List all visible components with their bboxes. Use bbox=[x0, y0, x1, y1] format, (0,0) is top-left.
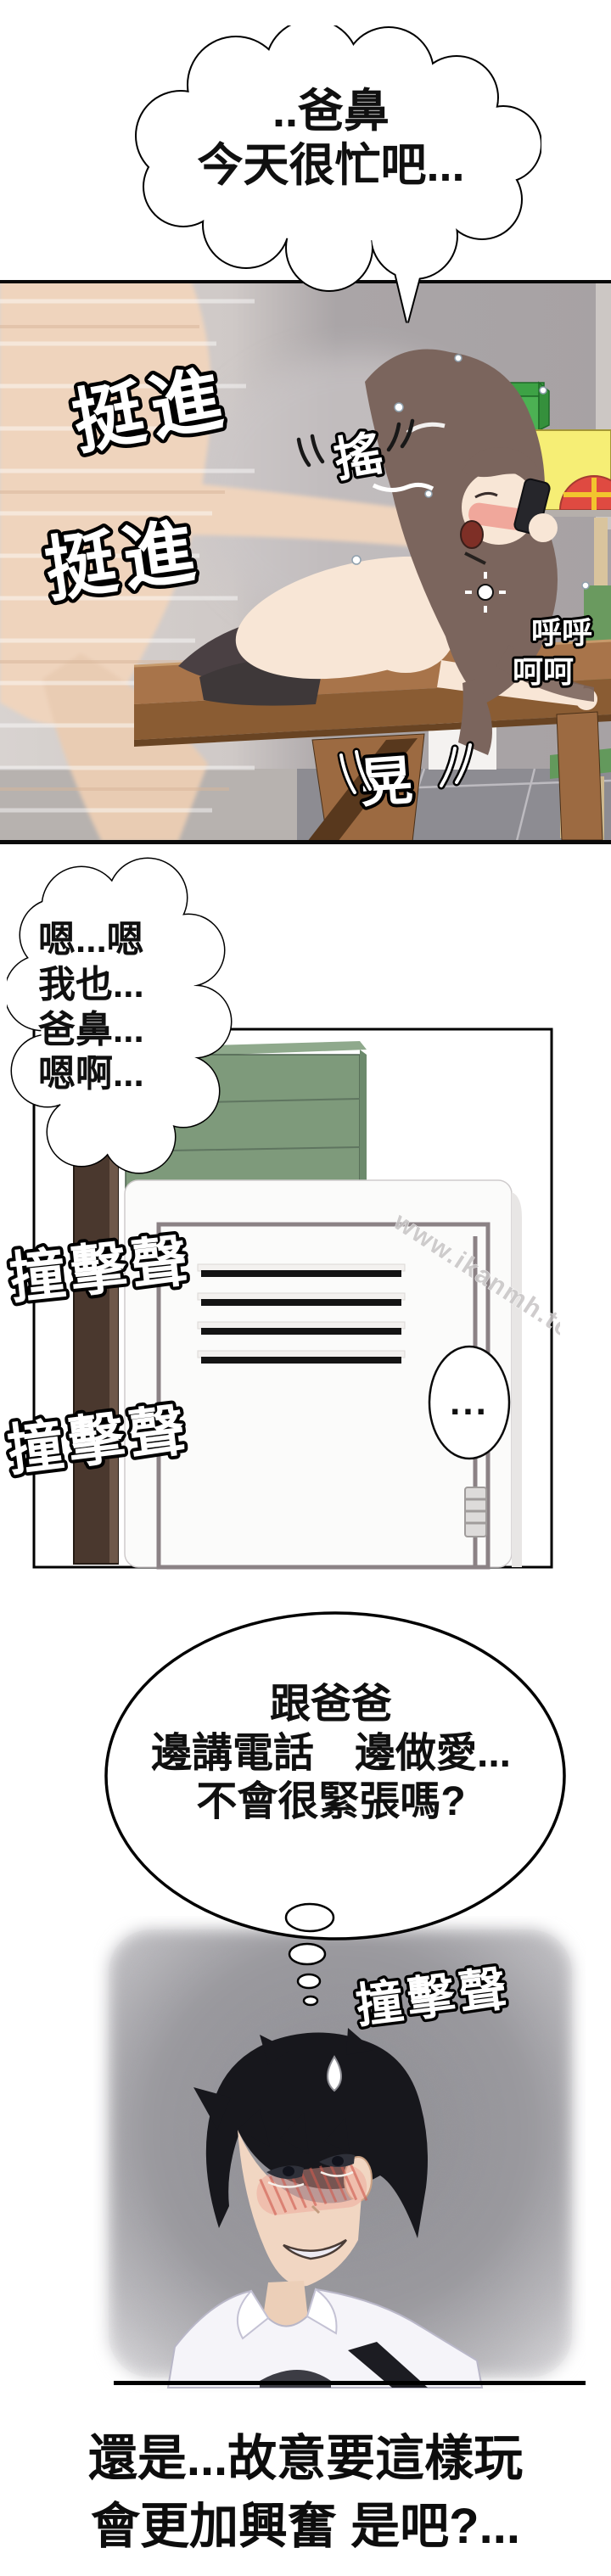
sfx-bang-1: 撞擊聲 bbox=[7, 1229, 196, 1310]
moan-speech-text: 嗯...嗯 我也... 爸鼻... 嗯啊... bbox=[38, 918, 216, 1097]
sfx-breath-2: 呵呵 bbox=[513, 654, 574, 689]
table-leg-right bbox=[557, 712, 603, 840]
sfx-bang-2: 撞擊聲 bbox=[4, 1397, 193, 1482]
sfx-shake: 搖 bbox=[330, 426, 386, 487]
phone-hand bbox=[529, 513, 558, 542]
top-speech-text: ..爸鼻 今天很忙吧... bbox=[153, 85, 509, 193]
bang-sfx-overlay: 撞擊聲 撞擊聲 bbox=[0, 1209, 356, 1515]
locker-lock bbox=[465, 1487, 486, 1537]
caption-text: 還是...故意要這樣玩 會更加興奮 是吧?... bbox=[0, 2425, 611, 2561]
silence-text: ... bbox=[450, 1381, 489, 1423]
panel-1-scene: 挺進 挺進 搖 晃 呼呼 呵呵 bbox=[0, 280, 611, 844]
thought-text: 跟爸爸 邊講電話 邊做愛... 不會很緊張嗎? bbox=[119, 1680, 543, 1827]
sfx-breath-1: 呼呼 bbox=[531, 615, 592, 650]
panel-divider-line bbox=[114, 2381, 586, 2385]
silence-bubble: ... bbox=[429, 1347, 509, 1459]
thought-trail bbox=[286, 1904, 334, 2005]
panel-1-bottom-border bbox=[0, 840, 611, 844]
open-mouth bbox=[461, 521, 483, 548]
comic-page: 挺進 挺進 搖 晃 呼呼 呵呵 bbox=[0, 0, 611, 2576]
